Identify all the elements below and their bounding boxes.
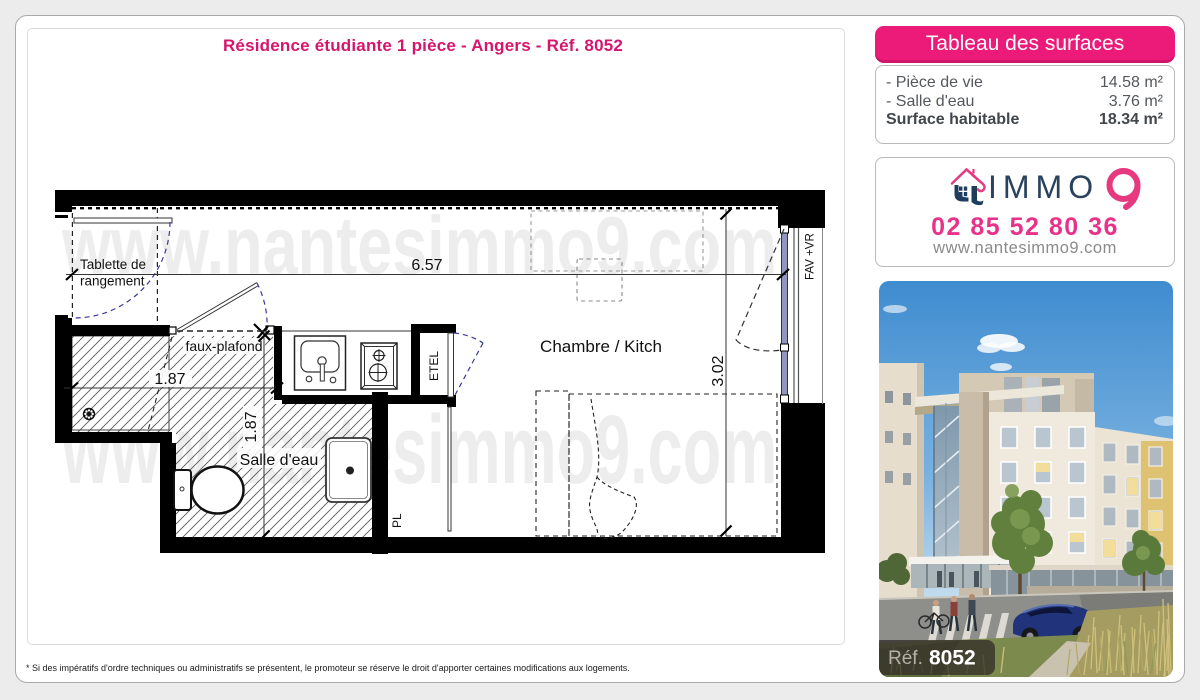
svg-text:8052: 8052 [929,647,976,670]
svg-text:Réf.: Réf. [888,648,923,669]
